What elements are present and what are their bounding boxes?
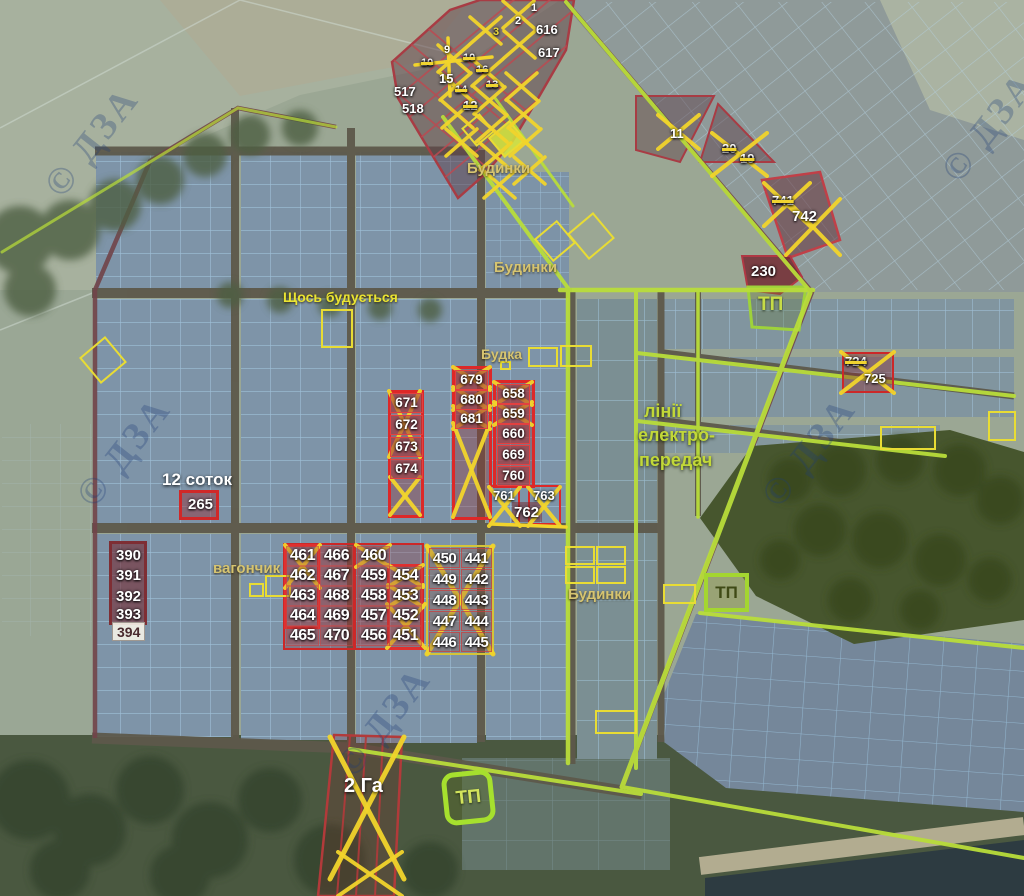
area-label: лінії [644, 402, 681, 420]
plot-number-11[interactable]: 11 [670, 127, 684, 140]
plot-number-453[interactable]: 453 [389, 586, 422, 606]
plot-number-448[interactable]: 448 [429, 590, 460, 610]
strike-line [491, 524, 566, 528]
plot-number-452[interactable]: 452 [389, 606, 422, 626]
highlight-box [596, 546, 626, 565]
plot-number-19[interactable]: 19 [740, 152, 754, 165]
plot-number-724[interactable]: 724 [845, 355, 867, 368]
dza-watermark: © ДЗА [932, 63, 1024, 191]
plot-number-671[interactable]: 671 [390, 393, 423, 413]
plot-number-669[interactable]: 669 [497, 445, 530, 465]
plot-number-449[interactable]: 449 [429, 569, 460, 589]
dza-watermark: © ДЗА [35, 78, 148, 206]
plot-number-443[interactable]: 443 [461, 590, 492, 610]
plot-number-392[interactable]: 392 [116, 589, 141, 604]
area-label: електро- [638, 426, 715, 444]
crossed-out-mark [504, 31, 535, 58]
plot-number-660[interactable]: 660 [497, 424, 530, 444]
plot-number-12[interactable]: 12 [463, 99, 477, 112]
plot-number-680[interactable]: 680 [455, 390, 488, 410]
plot-number-393[interactable]: 393 [116, 607, 141, 622]
highlight-box [249, 583, 264, 597]
plot-number-467[interactable]: 467 [320, 566, 353, 586]
crossed-out-mark [474, 87, 505, 114]
area-label: передач [639, 451, 712, 469]
area-label: Будка [481, 347, 522, 361]
plot-number-441[interactable]: 441 [461, 548, 492, 568]
highlight-box [663, 584, 696, 604]
plot-number-3[interactable]: 3 [493, 27, 499, 38]
plot-number-442[interactable]: 442 [461, 569, 492, 589]
satellite-cadastral-map: 1261661739101015161413125175181120197417… [0, 0, 1024, 896]
plot-number-760[interactable]: 760 [497, 466, 530, 486]
plot-number-391[interactable]: 391 [116, 568, 141, 583]
plot-number-465[interactable]: 465 [286, 626, 319, 646]
highlight-box [528, 347, 558, 367]
plot-number-762[interactable]: 762 [514, 505, 539, 520]
plot-number-10[interactable]: 10 [463, 53, 475, 64]
plot-number-462[interactable]: 462 [286, 566, 319, 586]
area-label: Будинки [467, 161, 530, 176]
plot-number-469[interactable]: 469 [320, 606, 353, 626]
plot-number-464[interactable]: 464 [286, 606, 319, 626]
highlight-box [534, 220, 576, 262]
highlight-box [321, 309, 353, 348]
highlight-box [880, 426, 936, 450]
highlight-box [565, 546, 595, 565]
plot-number-468[interactable]: 468 [320, 586, 353, 606]
plot-number-390[interactable]: 390 [116, 548, 141, 563]
plot-number-463[interactable]: 463 [286, 586, 319, 606]
plot-number-454[interactable]: 454 [389, 566, 422, 586]
crossed-out-mark [453, 423, 490, 517]
plot-number-230[interactable]: 230 [751, 264, 776, 279]
plot-number-616[interactable]: 616 [536, 23, 558, 36]
dza-watermark: © ДЗА [752, 388, 865, 516]
tp-substation[interactable]: ТП [758, 294, 783, 316]
plot-number-679[interactable]: 679 [455, 370, 488, 390]
plot-number-673[interactable]: 673 [390, 437, 423, 457]
plot-number-458[interactable]: 458 [357, 586, 390, 606]
plot-number-617[interactable]: 617 [538, 46, 560, 59]
plot-number-460[interactable]: 460 [357, 546, 390, 566]
plot-number-16[interactable]: 16 [476, 65, 488, 76]
highlight-box [596, 566, 626, 584]
plot-number-518[interactable]: 518 [402, 102, 424, 115]
highlight-box [988, 411, 1016, 441]
crossed-out-mark [508, 101, 539, 128]
plot-number-725[interactable]: 725 [864, 372, 886, 385]
tp-substation[interactable]: ТП [440, 768, 496, 826]
crossed-out-mark [446, 129, 477, 156]
tp-substation[interactable]: ТП [704, 573, 749, 612]
plot-number-13[interactable]: 13 [486, 80, 498, 91]
plot-number-265[interactable]: 265 [188, 497, 213, 512]
plot-number-741[interactable]: 741 [772, 194, 794, 207]
plot-number-659[interactable]: 659 [497, 404, 530, 424]
plot-number-763[interactable]: 763 [533, 489, 555, 502]
plot-number-456[interactable]: 456 [357, 626, 390, 646]
plot-number-15[interactable]: 15 [439, 72, 453, 85]
highlight-box [565, 566, 595, 584]
area-label: Щось будується [283, 290, 398, 304]
crossed-out-mark [338, 852, 402, 896]
crossed-out-mark [506, 73, 537, 100]
plot-number-470[interactable]: 470 [320, 626, 353, 646]
plot-number-681[interactable]: 681 [455, 409, 488, 429]
crossed-out-mark [390, 477, 420, 515]
plot-number-445[interactable]: 445 [461, 632, 492, 652]
plot-number-674[interactable]: 674 [390, 459, 423, 479]
area-label: 12 соток [162, 471, 232, 488]
plot-number-450[interactable]: 450 [429, 548, 460, 568]
highlight-box [595, 710, 637, 734]
plot-number-742[interactable]: 742 [792, 209, 817, 224]
area-label: Будинки [494, 260, 557, 275]
annotations-overlay: 1261661739101015161413125175181120197417… [0, 0, 1024, 896]
plot-number-672[interactable]: 672 [390, 415, 423, 435]
plot-number-761[interactable]: 761 [493, 489, 515, 502]
area-label: вагончик [213, 561, 280, 576]
area-label: Будинки [568, 587, 631, 602]
plot-number-444[interactable]: 444 [461, 611, 492, 631]
plot-number-451[interactable]: 451 [389, 626, 422, 646]
plot-number-447[interactable]: 447 [429, 611, 460, 631]
plot-number-517[interactable]: 517 [394, 85, 416, 98]
plot-number-2[interactable]: 2 [515, 16, 521, 27]
plot-number-466[interactable]: 466 [320, 546, 353, 566]
plot-number-658[interactable]: 658 [497, 384, 530, 404]
plot-number-1[interactable]: 1 [531, 3, 537, 14]
highlight-box [500, 361, 511, 370]
plot-number-461[interactable]: 461 [286, 546, 319, 566]
plot-number-9[interactable]: 9 [444, 45, 450, 56]
highlight-box [560, 345, 592, 367]
area-label: 2 Га [344, 776, 383, 796]
plot-number-446[interactable]: 446 [429, 632, 460, 652]
crossed-out-mark [510, 129, 541, 156]
highlight-box [567, 212, 615, 260]
highlight-box [79, 336, 127, 384]
crossed-out-mark [476, 115, 507, 142]
plot-number-459[interactable]: 459 [357, 566, 390, 586]
plot-number-457[interactable]: 457 [357, 606, 390, 626]
plot-number-20[interactable]: 20 [722, 142, 736, 155]
plot-number-14[interactable]: 14 [455, 85, 467, 96]
plot-number-10[interactable]: 10 [421, 58, 433, 69]
dza-watermark: © ДЗА [67, 388, 180, 516]
plot-number-394[interactable]: 394 [112, 622, 145, 641]
